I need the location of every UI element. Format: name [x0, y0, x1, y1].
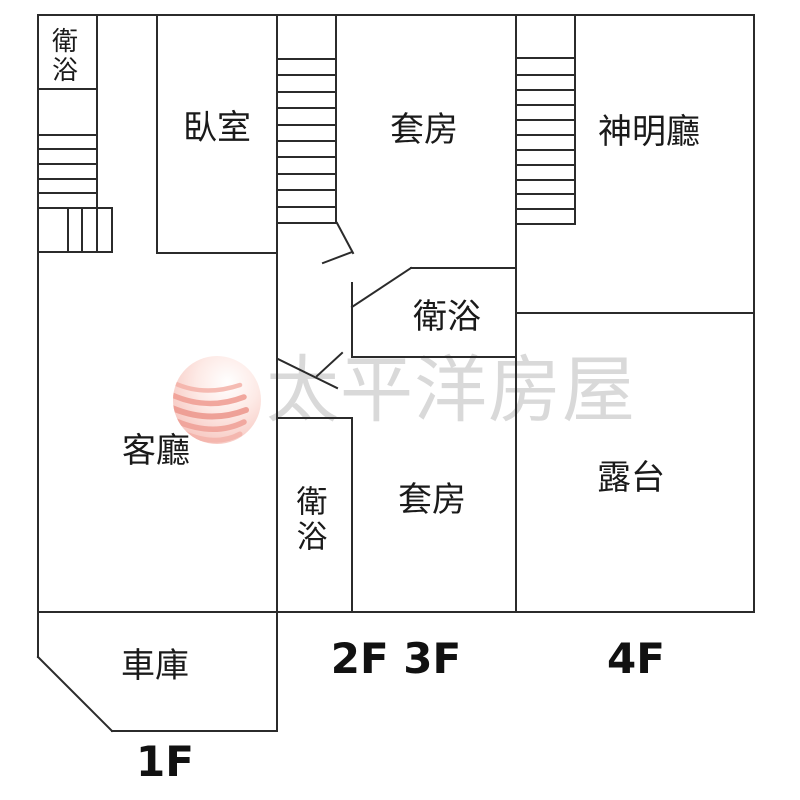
- room-label-garage: 車庫: [121, 649, 189, 683]
- room-label-suite-upper: 套房: [390, 113, 458, 147]
- floor-plan-canvas: 太平洋房屋: [0, 0, 800, 800]
- room-label-suite-lower: 套房: [398, 483, 466, 517]
- floor-label-2f3f: 2F 3F: [331, 638, 461, 680]
- room-label-living-room: 客廳: [122, 434, 190, 468]
- room-label-bath-mid: 衛浴: [413, 300, 481, 334]
- room-label-bedroom: 臥室: [183, 111, 251, 145]
- floor-label-1f: 1F: [136, 741, 194, 783]
- room-label-bath-lower: 衛浴: [295, 485, 328, 554]
- room-label-shrine-hall: 神明廳: [598, 115, 700, 149]
- room-label-terrace: 露台: [597, 461, 665, 495]
- room-label-bath-top-left: 衛浴: [51, 28, 79, 86]
- floor-label-4f: 4F: [607, 638, 665, 680]
- label-layer: 衛浴 臥室 套房 神明廳 衛浴 客廳 衛浴 套房 露台 車庫 1F 2F 3F …: [0, 0, 800, 800]
